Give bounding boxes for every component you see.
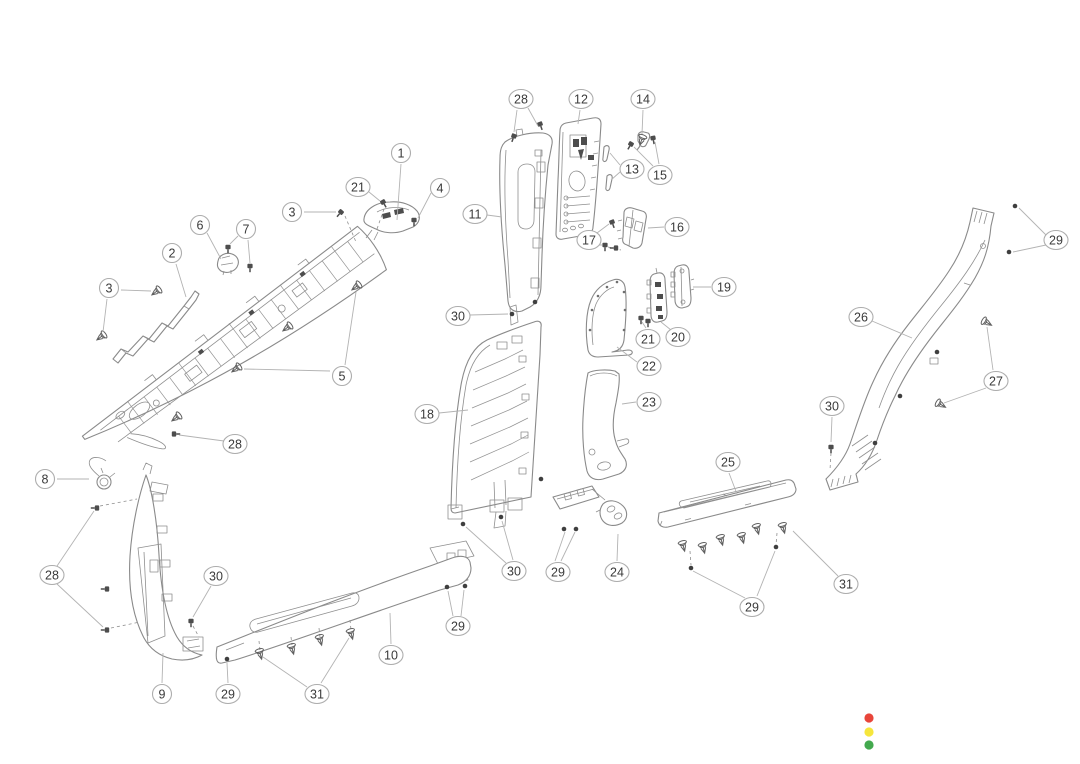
callout-leader-line <box>642 110 643 134</box>
callout-leader-line <box>502 521 513 560</box>
callout-number: 7 <box>243 223 250 237</box>
callout-leader-line <box>729 473 737 494</box>
callout-number: 27 <box>989 375 1003 389</box>
callout-number: 30 <box>507 565 521 579</box>
green-light-icon <box>864 740 873 749</box>
seal-stud-dots <box>589 281 627 332</box>
callout-leader-line <box>1013 245 1046 252</box>
callout-number: 3 <box>106 282 113 296</box>
callout-number: 28 <box>514 93 528 107</box>
callout-leader-line <box>263 657 307 687</box>
callout-leader-line <box>193 586 211 617</box>
clip-icon <box>980 316 993 329</box>
part-26-quarter-trim[interactable] <box>826 208 994 490</box>
callout-21[interactable]: 21 <box>346 178 380 202</box>
callout-leader-line <box>57 511 94 566</box>
callout-28[interactable]: 28 <box>40 511 103 627</box>
callout-leader-line <box>597 224 609 233</box>
callout-29[interactable]: 29 <box>446 590 470 636</box>
part-18-b-pillar-lower-trim[interactable] <box>448 321 541 528</box>
callout-number: 29 <box>221 688 235 702</box>
callout-number: 31 <box>839 578 853 592</box>
screw-dot-icon <box>539 477 544 482</box>
callout-number: 11 <box>469 208 482 222</box>
callout-3[interactable]: 3 <box>283 203 337 222</box>
callout-leader-line <box>661 322 671 330</box>
callout-number: 4 <box>437 182 444 196</box>
callout-30[interactable]: 30 <box>820 397 844 443</box>
callout-number: 6 <box>197 219 204 233</box>
callout-number: 20 <box>671 331 685 345</box>
callout-number: 2 <box>169 247 176 261</box>
callout-number: 1 <box>398 147 405 161</box>
callout-leader-line <box>207 233 221 259</box>
clip-icon <box>737 532 748 545</box>
clip-icon <box>678 540 689 553</box>
part-25-rear-sill-plate[interactable] <box>658 480 796 528</box>
callout-29[interactable]: 29 <box>216 663 240 704</box>
screw-dot-icon <box>499 515 504 520</box>
callout-19[interactable]: 19 <box>693 278 736 297</box>
callout-number: 29 <box>451 620 465 634</box>
callout-28[interactable]: 28 <box>179 435 247 454</box>
callout-28[interactable]: 28 <box>509 90 538 133</box>
callout-number: 3 <box>289 206 296 220</box>
callout-number: 12 <box>574 93 588 107</box>
callout-number: 24 <box>610 566 624 580</box>
callout-leader-line <box>162 653 163 683</box>
callout-leader-line <box>244 369 330 371</box>
callout-29[interactable]: 29 <box>1013 208 1068 252</box>
callout-number: 30 <box>209 570 223 584</box>
callout-3[interactable]: 3 <box>100 279 152 333</box>
screw-dot-icon <box>935 350 940 355</box>
callout-number: 29 <box>1049 234 1063 248</box>
callout-leader-line <box>693 571 745 598</box>
callout-14[interactable]: 14 <box>631 90 655 135</box>
screw-icon <box>610 245 618 250</box>
clip-icon <box>752 523 763 536</box>
callout-number: 22 <box>642 360 656 374</box>
screw-dot-icon <box>774 545 779 550</box>
callout-leader-line <box>487 215 502 217</box>
callout-number: 25 <box>721 456 735 470</box>
clip-icon <box>315 634 326 647</box>
screw-icon <box>602 243 607 251</box>
callout-20[interactable]: 20 <box>661 322 690 347</box>
part-2-garnish-strip[interactable] <box>113 291 199 363</box>
status-traffic-light <box>864 713 873 749</box>
callout-24[interactable]: 24 <box>605 534 629 582</box>
callout-leader-line <box>944 388 986 403</box>
callout-31[interactable]: 31 <box>793 531 858 594</box>
callout-number: 28 <box>45 569 59 583</box>
dashed-guide-line <box>830 453 831 470</box>
callout-leader-line <box>103 299 107 332</box>
callout-leader-line <box>230 236 238 244</box>
screw-dot-icon <box>463 584 468 589</box>
callout-number: 9 <box>159 688 166 702</box>
clip-icon <box>778 522 789 535</box>
screw-dot-icon <box>1007 250 1012 255</box>
screw-dot-icon <box>510 312 515 317</box>
screw-dot-icon <box>1013 204 1018 209</box>
callout-leader-line <box>418 193 431 218</box>
callout-31[interactable]: 31 <box>263 638 349 704</box>
callout-number: 30 <box>451 310 465 324</box>
part-8-clip-ring[interactable] <box>89 457 115 489</box>
part-1-end-cap[interactable] <box>364 202 419 240</box>
screw-dot-icon <box>225 657 230 662</box>
part-11-b-pillar-upper-trim[interactable] <box>500 129 552 325</box>
screw-dot-icon <box>873 441 878 446</box>
callout-number: 18 <box>420 408 434 422</box>
part-9-cowl-side-trim[interactable] <box>130 463 203 660</box>
callout-30[interactable]: 30 <box>446 307 508 326</box>
clip-icon <box>716 534 727 547</box>
part-24-bracket[interactable] <box>553 486 627 525</box>
callout-number: 29 <box>745 601 759 615</box>
callout-number: 28 <box>228 438 242 452</box>
callout-leader-line <box>57 584 103 627</box>
callouts-layer: 1214367235288283092931102928121413151117… <box>36 90 1069 704</box>
callout-number: 29 <box>551 566 565 580</box>
callout-leader-line <box>369 192 380 201</box>
callout-30[interactable]: 30 <box>193 567 228 618</box>
callout-number: 15 <box>653 169 667 183</box>
dashed-guide-line <box>111 622 140 628</box>
screw-icon <box>609 219 617 229</box>
callout-leader-line <box>227 663 228 683</box>
callout-leader-line <box>248 240 250 263</box>
part-13-clips[interactable] <box>603 146 612 191</box>
callout-27[interactable]: 27 <box>944 327 1008 403</box>
callout-number: 10 <box>384 649 398 663</box>
callout-number: 23 <box>642 396 656 410</box>
screw-icon <box>91 505 99 510</box>
callout-29[interactable]: 29 <box>693 551 775 617</box>
part-22-seal[interactable] <box>586 279 632 357</box>
callout-leader-line <box>448 591 453 616</box>
callout-leader-line <box>321 638 349 683</box>
callout-leader-line <box>461 590 464 616</box>
screw-dot-icon <box>461 522 466 527</box>
callout-number: 8 <box>42 473 49 487</box>
screw-dot-icon <box>689 566 694 571</box>
callout-13[interactable]: 13 <box>610 153 644 180</box>
callout-leader-line <box>1019 208 1046 235</box>
part-12-b-pillar-bracket[interactable] <box>556 118 601 240</box>
callout-leader-line <box>528 108 538 126</box>
screw-icon <box>645 319 650 327</box>
part-20-bracket[interactable] <box>647 268 667 322</box>
callout-number: 26 <box>854 311 868 325</box>
parts-diagram-canvas: 1214367235288283092931102928121413151117… <box>0 0 1080 764</box>
callout-number: 13 <box>625 163 639 177</box>
clip-icon <box>934 398 947 411</box>
dashed-guide-line <box>100 499 137 506</box>
callout-leader-line <box>987 327 993 370</box>
screw-icon <box>626 141 635 151</box>
callout-23[interactable]: 23 <box>622 393 661 412</box>
callout-leader-line <box>470 314 508 315</box>
part-19-bracket[interactable] <box>671 265 694 308</box>
part-16-bracket[interactable] <box>617 208 646 249</box>
part-6-bracket[interactable] <box>217 253 238 275</box>
callout-leader-line <box>655 142 659 164</box>
callout-2[interactable]: 2 <box>163 244 187 298</box>
screw-icon <box>828 445 833 453</box>
callout-29[interactable]: 29 <box>546 532 575 582</box>
callout-6[interactable]: 6 <box>191 216 222 260</box>
screw-icon <box>188 619 193 627</box>
callout-leader-line <box>610 153 620 165</box>
callout-leader-line <box>642 322 646 328</box>
callout-number: 21 <box>351 181 365 195</box>
screw-dot-icon <box>445 585 450 590</box>
callout-leader-line <box>466 527 506 563</box>
callout-number: 30 <box>825 400 839 414</box>
callout-leader-line <box>121 290 151 291</box>
dashed-guide-line <box>776 533 777 545</box>
clip-icon <box>169 411 183 424</box>
screw-dot-icon <box>898 394 903 399</box>
screw-dot-icon <box>574 527 579 532</box>
callout-leader-line <box>648 227 664 228</box>
callout-leader-line <box>793 531 838 576</box>
screw-dot-icon <box>533 300 538 305</box>
callout-leader-line <box>757 551 775 596</box>
callout-number: 19 <box>717 281 731 295</box>
callout-10[interactable]: 10 <box>379 613 403 665</box>
screw-icon <box>225 245 230 253</box>
callout-leader-line <box>179 435 224 441</box>
callout-9[interactable]: 9 <box>153 653 172 704</box>
callout-22[interactable]: 22 <box>617 347 661 376</box>
callout-leader-line <box>622 402 636 404</box>
callout-8[interactable]: 8 <box>36 470 90 489</box>
callout-number: 14 <box>636 93 650 107</box>
callout-11[interactable]: 11 <box>463 205 502 224</box>
dashed-guide-line <box>193 626 199 637</box>
parts-diagram: 1214367235288283092931102928121413151117… <box>0 0 1080 764</box>
clip-icon <box>346 628 357 641</box>
screw-icon <box>101 627 109 632</box>
screw-dot-icon <box>562 527 567 532</box>
callout-4[interactable]: 4 <box>418 179 450 219</box>
callout-number: 21 <box>641 333 655 347</box>
callout-number: 5 <box>339 370 346 384</box>
dashed-guide-line <box>690 551 691 565</box>
part-23-lower-duct[interactable] <box>583 370 629 480</box>
screw-icon <box>101 586 109 591</box>
callout-leader-line <box>345 292 356 365</box>
callout-leader-line <box>390 613 391 644</box>
callout-leader-line <box>617 534 618 561</box>
clip-icon <box>149 285 163 298</box>
callout-leader-line <box>176 264 186 297</box>
screw-icon <box>335 209 344 219</box>
red-light-icon <box>864 713 873 722</box>
clip-icon <box>698 542 709 555</box>
callout-30[interactable]: 30 <box>466 521 526 581</box>
callout-number: 16 <box>670 221 684 235</box>
callout-leader-line <box>831 417 832 442</box>
screw-icon <box>172 431 180 436</box>
screw-icon <box>247 264 252 272</box>
callout-number: 31 <box>310 688 324 702</box>
callout-leader-line <box>514 110 517 132</box>
callout-16[interactable]: 16 <box>648 218 689 237</box>
clip-icon <box>94 330 108 343</box>
yellow-light-icon <box>864 727 873 736</box>
callout-number: 17 <box>582 234 596 248</box>
callout-leader-line <box>617 347 637 362</box>
